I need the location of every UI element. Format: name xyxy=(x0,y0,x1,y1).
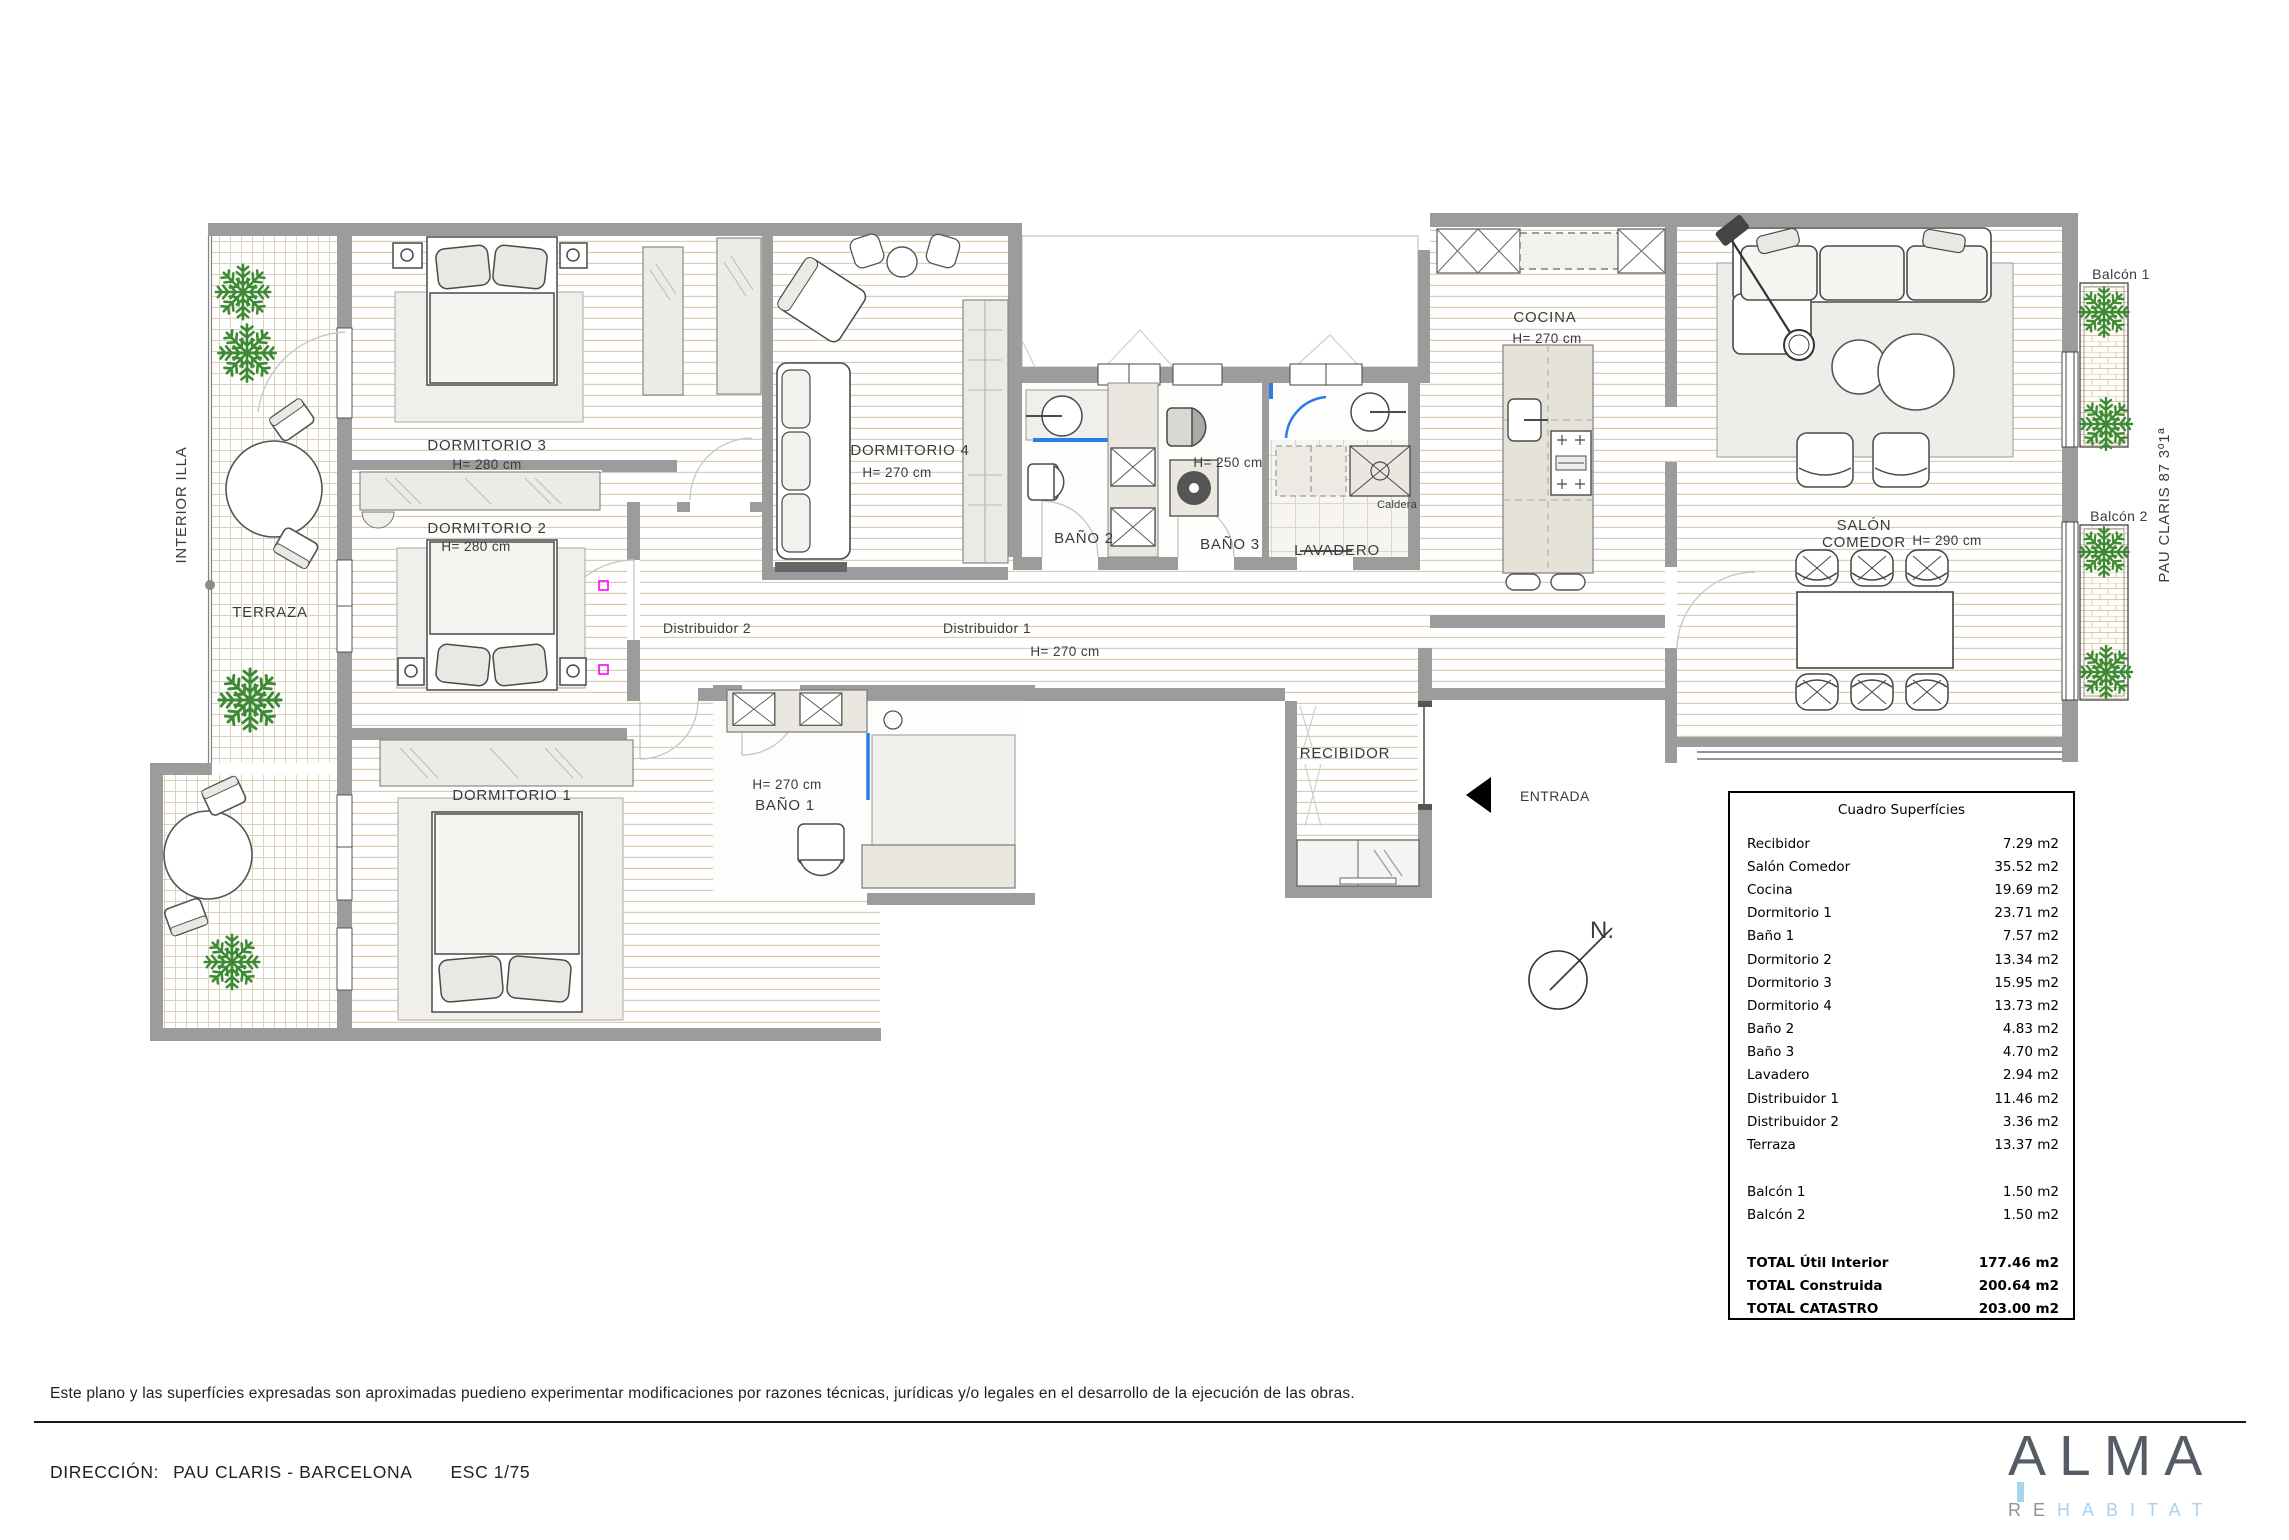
surface-table-rows: Recibidor7.29 m2Salón Comedor35.52 m2Coc… xyxy=(1730,832,2073,1321)
surface-table: Cuadro Superfícies Recibidor7.29 m2Salón… xyxy=(1728,791,2075,1320)
surface-row-value: 13.73 m2 xyxy=(1994,998,2059,1014)
surface-row: Baño 24.83 m2 xyxy=(1730,1018,2073,1041)
terrace-table-1 xyxy=(226,441,322,537)
surface-row-label: Balcón 2 xyxy=(1747,1207,1805,1223)
surface-row: Lavadero2.94 m2 xyxy=(1730,1064,2073,1087)
surface-row-value: 2.94 m2 xyxy=(2003,1067,2059,1083)
disclaimer-text: Este plano y las superfícies expresadas … xyxy=(50,1385,1750,1403)
label-dormitorio-3: DORMITORIO 3 xyxy=(427,437,546,454)
label-dormitorio-4: DORMITORIO 4 xyxy=(850,442,969,459)
surface-row: Dormitorio 123.71 m2 xyxy=(1730,902,2073,925)
surface-row: Recibidor7.29 m2 xyxy=(1730,832,2073,855)
surface-row-value: 11.46 m2 xyxy=(1994,1091,2059,1107)
surface-row-value: 3.36 m2 xyxy=(2003,1114,2059,1130)
surface-row-value: 4.70 m2 xyxy=(2003,1044,2059,1060)
surface-row: Baño 17.57 m2 xyxy=(1730,925,2073,948)
label-terraza: TERRAZA xyxy=(232,604,308,621)
surface-row-value: 200.64 m2 xyxy=(1979,1278,2059,1294)
surface-row-label: Balcón 1 xyxy=(1747,1184,1805,1200)
page: { "labels": { "interior_illa": "INTERIOR… xyxy=(0,0,2289,1540)
label-bano-3: BAÑO 3 xyxy=(1200,536,1260,553)
surface-row-value: 23.71 m2 xyxy=(1994,905,2059,921)
surface-row-label: Dormitorio 2 xyxy=(1747,952,1832,968)
terrace-table-2 xyxy=(164,811,252,899)
surface-row-label: Distribuidor 2 xyxy=(1747,1114,1839,1130)
surface-row-label: Dormitorio 4 xyxy=(1747,998,1832,1014)
surface-row: TOTAL Útil Interior177.46 m2 xyxy=(1730,1251,2073,1274)
alma-logo-sub-re: RE xyxy=(2008,1500,2057,1520)
surface-row-value: 7.29 m2 xyxy=(2003,836,2059,852)
escala-value: ESC 1/75 xyxy=(451,1462,531,1482)
label-dormitorio-3-height: H= 280 cm xyxy=(452,457,521,472)
surface-row-value: 7.57 m2 xyxy=(2003,928,2059,944)
entrance-marker xyxy=(1466,777,1491,813)
label-salon-line1: SALÓN xyxy=(1837,517,1892,534)
surface-row: Cocina19.69 m2 xyxy=(1730,878,2073,901)
surface-table-spacer xyxy=(1730,1157,2073,1181)
surface-row: Balcón 11.50 m2 xyxy=(1730,1181,2073,1204)
label-bano-1-height: H= 270 cm xyxy=(752,777,821,792)
surface-row-label: TOTAL Útil Interior xyxy=(1747,1255,1888,1271)
surface-row-value: 177.46 m2 xyxy=(1979,1255,2059,1271)
surface-row-value: 13.37 m2 xyxy=(1994,1137,2059,1153)
surface-row-label: Dormitorio 1 xyxy=(1747,905,1832,921)
lightwell xyxy=(1012,236,1418,367)
surface-row-value: 203.00 m2 xyxy=(1979,1301,2059,1317)
label-cocina: COCINA xyxy=(1513,309,1576,326)
surface-row: Distribuidor 23.36 m2 xyxy=(1730,1110,2073,1133)
label-bano-1: BAÑO 1 xyxy=(755,797,815,814)
label-dormitorio-4-height: H= 270 cm xyxy=(862,465,931,480)
label-distribuidor-2: Distribuidor 2 xyxy=(663,620,751,636)
surface-row-label: TOTAL CATASTRO xyxy=(1747,1301,1878,1317)
surface-row: Balcón 21.50 m2 xyxy=(1730,1204,2073,1227)
label-dormitorio-2-height: H= 280 cm xyxy=(441,539,510,554)
laundry xyxy=(1276,446,1410,496)
surface-row-label: Salón Comedor xyxy=(1747,859,1850,875)
alma-logo-word: ALMA xyxy=(2008,1426,2248,1486)
direccion-line: DIRECCIÓN:PAU CLARIS - BARCELONAESC 1/75 xyxy=(50,1462,530,1483)
surface-row-value: 35.52 m2 xyxy=(1994,859,2059,875)
label-dormitorio-1: DORMITORIO 1 xyxy=(452,787,571,804)
alma-logo-subtitle: REHABITAT xyxy=(2008,1500,2248,1521)
alma-logo: ALMA REHABITAT xyxy=(2008,1426,2248,1521)
label-distribuidor-1: Distribuidor 1 xyxy=(943,620,1031,636)
surface-row-value: 4.83 m2 xyxy=(2003,1021,2059,1037)
surface-row-value: 13.34 m2 xyxy=(1994,952,2059,968)
surface-row: Salón Comedor35.52 m2 xyxy=(1730,855,2073,878)
label-salon-height: H= 290 cm xyxy=(1912,533,1981,548)
surface-table-spacer xyxy=(1730,1227,2073,1251)
label-bano-3-height: H= 250 cm xyxy=(1193,455,1262,470)
surface-row-value: 19.69 m2 xyxy=(1994,882,2059,898)
surface-row-label: Baño 1 xyxy=(1747,928,1794,944)
surface-row: Terraza13.37 m2 xyxy=(1730,1133,2073,1156)
surface-row-label: TOTAL Construida xyxy=(1747,1278,1883,1294)
label-north: N. xyxy=(1590,917,1614,944)
surface-row: Dormitorio 413.73 m2 xyxy=(1730,994,2073,1017)
label-entrada: ENTRADA xyxy=(1520,788,1590,804)
surface-row: Dormitorio 315.95 m2 xyxy=(1730,971,2073,994)
label-recibidor: RECIBIDOR xyxy=(1300,745,1391,762)
direccion-label: DIRECCIÓN: xyxy=(50,1462,159,1482)
surface-row-value: 1.50 m2 xyxy=(2003,1184,2059,1200)
entry-hall xyxy=(1297,840,1419,886)
label-distribuidor-1-height: H= 270 cm xyxy=(1030,644,1099,659)
label-bano-2: BAÑO 2 xyxy=(1054,530,1114,547)
label-salon-line2: COMEDOR xyxy=(1822,534,1906,551)
label-caldera: Caldera xyxy=(1377,499,1418,511)
surface-row-label: Baño 2 xyxy=(1747,1021,1794,1037)
label-balcon-1: Balcón 1 xyxy=(2092,266,2150,282)
surface-row-label: Recibidor xyxy=(1747,836,1810,852)
surface-row: Baño 34.70 m2 xyxy=(1730,1041,2073,1064)
label-dormitorio-2: DORMITORIO 2 xyxy=(427,520,546,537)
surface-row-label: Distribuidor 1 xyxy=(1747,1091,1839,1107)
label-interior-illa: INTERIOR ILLA xyxy=(173,446,190,563)
surface-row: Distribuidor 111.46 m2 xyxy=(1730,1087,2073,1110)
footer-divider xyxy=(34,1421,2246,1423)
label-lavadero: LAVADERO xyxy=(1294,542,1380,559)
surface-row-label: Lavadero xyxy=(1747,1067,1809,1083)
direccion-value: PAU CLARIS - BARCELONA xyxy=(173,1462,412,1482)
alma-logo-sub-habitat: HABITAT xyxy=(2057,1500,2214,1520)
bedroom-2 xyxy=(397,540,586,690)
alma-logo-accent xyxy=(2017,1482,2024,1502)
label-balcon-2: Balcón 2 xyxy=(2090,508,2148,524)
label-cocina-height: H= 270 cm xyxy=(1512,331,1581,346)
label-pau-claris: PAU CLARIS 87 3º1ª xyxy=(2156,427,2173,582)
surface-row-label: Terraza xyxy=(1747,1137,1796,1153)
surface-row-label: Cocina xyxy=(1747,882,1793,898)
surface-row-value: 1.50 m2 xyxy=(2003,1207,2059,1223)
surface-row: TOTAL CATASTRO203.00 m2 xyxy=(1730,1297,2073,1320)
surface-row-label: Baño 3 xyxy=(1747,1044,1794,1060)
surface-row: Dormitorio 213.34 m2 xyxy=(1730,948,2073,971)
bedroom-1 xyxy=(380,740,633,1020)
surface-row: TOTAL Construida200.64 m2 xyxy=(1730,1274,2073,1297)
surface-row-value: 15.95 m2 xyxy=(1994,975,2059,991)
surface-table-title: Cuadro Superfícies xyxy=(1730,793,2073,826)
surface-row-label: Dormitorio 3 xyxy=(1747,975,1832,991)
